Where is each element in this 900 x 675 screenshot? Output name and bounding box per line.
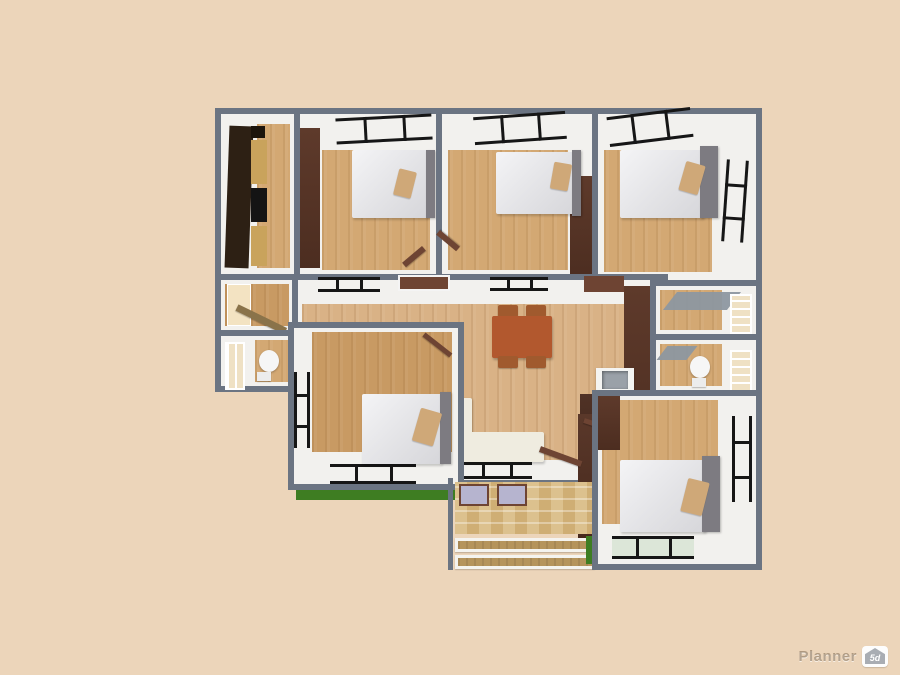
- bedroom-bl-south-window[interactable]: [330, 464, 416, 484]
- dining-table[interactable]: [492, 316, 552, 358]
- porch: [448, 478, 602, 570]
- bathroom-left-toilet-tank: [257, 372, 271, 381]
- watermark-brand-text: Planner: [798, 648, 857, 665]
- bedroom1-bed[interactable]: [352, 150, 428, 218]
- living-south-window[interactable]: [462, 462, 532, 479]
- porch-window-2[interactable]: [497, 484, 527, 506]
- floor-plan-canvas[interactable]: Planner 5d: [0, 0, 900, 675]
- dining-chair-3[interactable]: [498, 356, 518, 368]
- bathroom-right-toilet-tank: [692, 378, 706, 387]
- bedroom-br-accent: [598, 396, 620, 450]
- storage-window[interactable]: [730, 294, 752, 336]
- bedroom1-accent-wall: [300, 128, 320, 268]
- porch-window-1[interactable]: [459, 484, 489, 506]
- bedroom-bl-headboard: [440, 392, 451, 464]
- bedroom3-headboard: [700, 146, 718, 218]
- room-hallway-left: [215, 274, 299, 336]
- kitchen-counter[interactable]: [251, 140, 267, 184]
- porch-step-2: [455, 555, 595, 569]
- planner5d-logo-icon: 5d: [862, 646, 888, 667]
- bedroom1-north-window[interactable]: [335, 114, 432, 145]
- sofa[interactable]: [452, 432, 544, 462]
- stove[interactable]: [251, 188, 267, 222]
- fridge[interactable]: [251, 126, 265, 138]
- bathroom-left-toilet[interactable]: [259, 350, 279, 372]
- bedroom-br-south-window[interactable]: [612, 536, 694, 559]
- watermark-badge-text: 5d: [865, 653, 885, 663]
- bedroom1-headboard: [426, 150, 435, 218]
- corridor-door-2[interactable]: [584, 276, 624, 292]
- sink[interactable]: [602, 371, 628, 389]
- bedroom2-headboard: [572, 150, 581, 216]
- porch-step-1: [455, 538, 595, 552]
- bedroom-br-east-window[interactable]: [732, 416, 752, 502]
- bathroom-right-toilet[interactable]: [690, 356, 710, 378]
- room-bathroom-right: [650, 334, 762, 396]
- corridor-window-1[interactable]: [318, 277, 380, 292]
- room-storage-right: [650, 280, 762, 340]
- room-kitchen: [215, 108, 300, 280]
- bathroom-right-window[interactable]: [730, 350, 752, 394]
- kitchen-counter-2[interactable]: [251, 226, 267, 266]
- corridor-door-frame[interactable]: [398, 275, 450, 291]
- corridor-window-2[interactable]: [490, 277, 548, 291]
- room-bathroom-left: [215, 330, 299, 392]
- dining-chair-4[interactable]: [526, 356, 546, 368]
- kitchen-cabinets[interactable]: [225, 126, 254, 269]
- watermark: Planner 5d: [798, 646, 888, 667]
- bathroom-left-window[interactable]: [225, 342, 245, 390]
- bedroom-bl-west-window[interactable]: [294, 372, 310, 448]
